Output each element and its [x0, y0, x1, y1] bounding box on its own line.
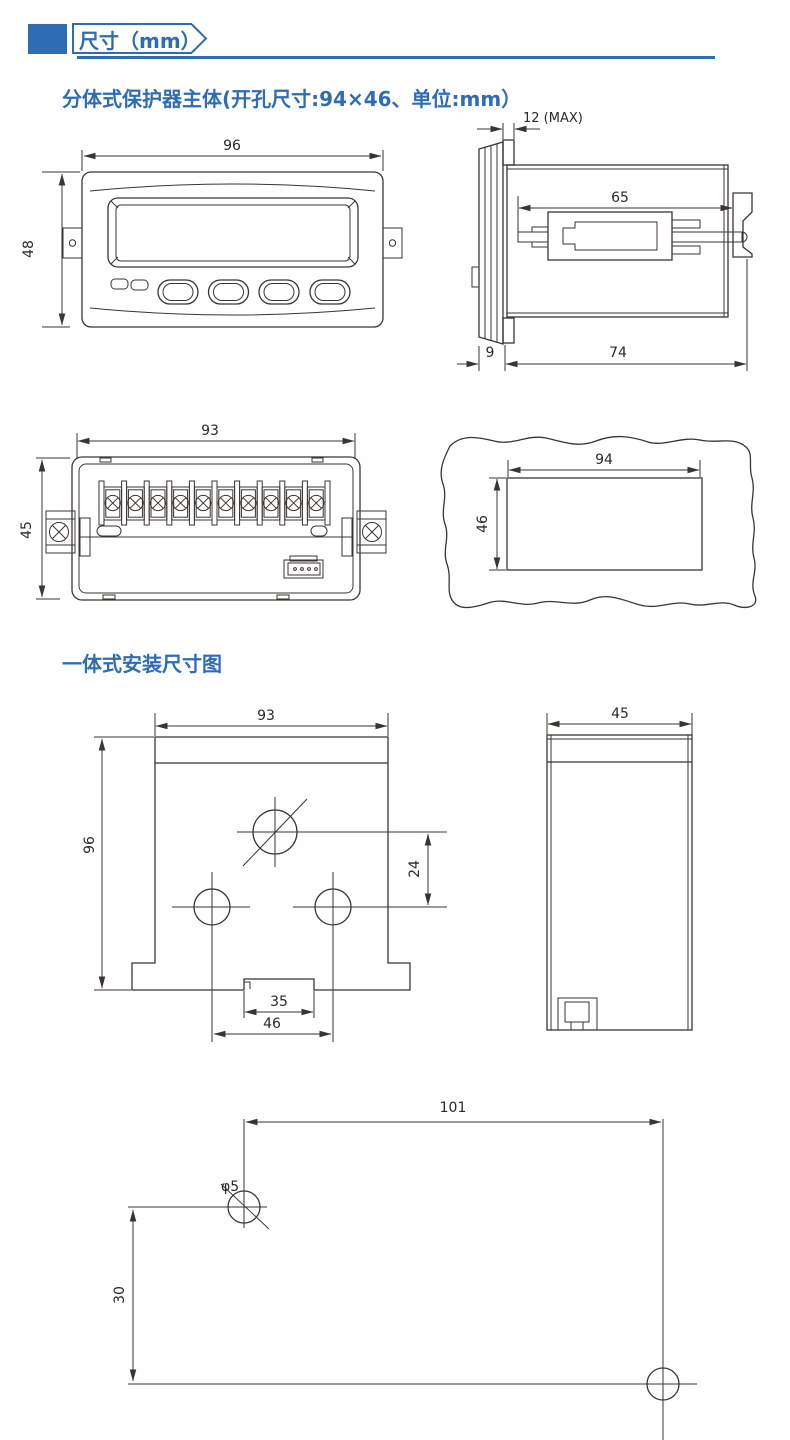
dim-cutout-width: 94: [595, 452, 613, 468]
dim-slide: 65: [611, 190, 629, 206]
dim-panel-max: 12 (MAX): [523, 111, 583, 126]
dim-mf-offset: 24: [407, 860, 423, 878]
panel-wall-top: [503, 140, 514, 165]
drill-dimensions: 101 30 φ5: [112, 1100, 661, 1381]
section-title-integrated: 一体式安装尺寸图: [62, 648, 222, 677]
mount-ear-left: [63, 228, 82, 258]
dim-front-width: 96: [223, 138, 241, 154]
dimension-sheet: 尺寸（mm） 分体式保护器主体(开孔尺寸:94×46、单位:mm） 一体式安装尺…: [0, 0, 790, 1440]
side-view-dimensions: 12 (MAX) 65 9 74: [457, 111, 747, 371]
integrated-side-figure: 45: [535, 700, 705, 1040]
dim-mf-width: 93: [257, 708, 275, 724]
dim-mf-height: 96: [82, 836, 98, 854]
cutout-dimensions: 94 46: [475, 452, 700, 570]
integrated-side-body: [547, 735, 692, 1030]
integrated-front-dimensions: 93 96 24 35 46: [82, 708, 428, 1034]
dim-mf-span: 46: [263, 1016, 281, 1032]
signal-connector: [284, 556, 323, 578]
header-divider: [77, 56, 715, 59]
front-view-figure: 96 48: [20, 110, 420, 370]
dim-front-height: 48: [21, 240, 37, 258]
dim-ms-width: 45: [611, 706, 629, 722]
front-view-body: [63, 172, 402, 327]
dim-mf-slot: 35: [270, 994, 288, 1010]
rear-bracket: [733, 193, 752, 257]
header-badge: [28, 24, 67, 54]
dim-drill-height: 30: [112, 1286, 128, 1304]
integrated-front-figure: 93 96 24 35 46: [80, 700, 460, 1050]
display-window: [116, 205, 350, 261]
panel-wall-bottom: [503, 318, 514, 343]
dim-body-depth: 74: [609, 345, 627, 361]
led-indicator-1: [111, 279, 128, 289]
cutout-figure: 94 46: [430, 425, 775, 620]
dim-rear-width: 93: [201, 423, 219, 439]
cutout-opening: [507, 478, 702, 570]
front-view-dimensions: 96 48: [21, 138, 383, 327]
ct-hole-top: [237, 797, 447, 867]
drill-layout-figure: 101 30 φ5: [100, 1090, 720, 1440]
mount-ear-screw-right: [357, 511, 386, 553]
dim-drill-span: 101: [440, 1100, 467, 1116]
front-buttons: [158, 280, 350, 304]
dim-rear-height: 45: [19, 521, 35, 539]
integrated-side-dimensions: 45: [547, 706, 692, 736]
mount-ear-screw-left: [46, 511, 75, 553]
dim-cutout-height: 46: [475, 515, 491, 533]
side-connector: [558, 998, 597, 1030]
drill-geometry: [128, 1119, 697, 1440]
mount-clamp: [518, 212, 747, 260]
integrated-front-body: [132, 737, 447, 1042]
side-view-figure: 12 (MAX) 65 9 74: [440, 100, 775, 390]
ct-hole-right: [293, 872, 447, 1042]
terminal-strip: [99, 481, 330, 525]
rear-view-body: [15, 420, 386, 600]
device-body-side: [507, 165, 728, 317]
led-indicator-2: [131, 280, 148, 290]
side-view-body: [472, 140, 752, 344]
mount-ear-right: [383, 228, 402, 258]
rear-view-figure: 93 45: [15, 420, 415, 620]
page-title: 尺寸（mm）: [79, 25, 209, 54]
ct-hole-left: [172, 872, 250, 1042]
dim-bezel-depth: 9: [486, 345, 495, 361]
display-bezel: [108, 198, 358, 267]
